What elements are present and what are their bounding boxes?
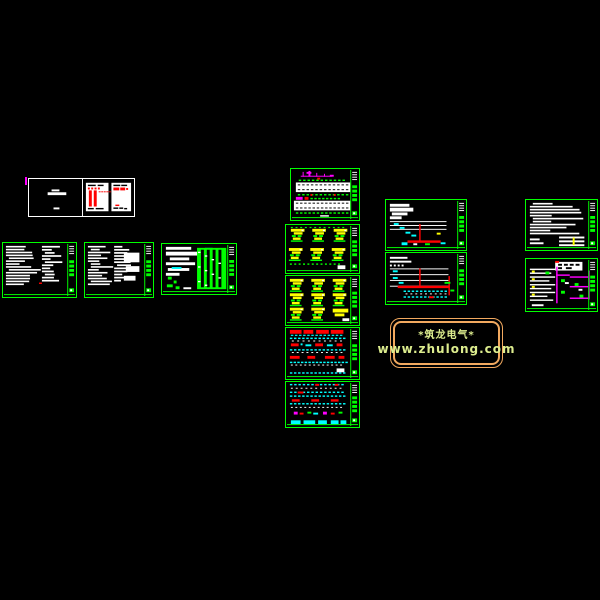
notes-sheet-1-graphics	[3, 243, 76, 297]
system-diagram-sheet-1-graphics	[286, 328, 359, 379]
plan-sheet	[525, 258, 598, 312]
system-diagram-sheet-1	[285, 327, 360, 380]
legend-sheet	[161, 243, 237, 295]
riser-diagram-sheet-graphics	[291, 169, 359, 220]
notes-sheet-3	[525, 199, 598, 251]
plan-sheet-graphics	[526, 259, 597, 311]
watermark-brand: *筑龙电气*	[418, 330, 474, 342]
legend-sheet-graphics	[162, 244, 236, 294]
watermark-border: *筑龙电气* www.zhulong.com	[393, 321, 500, 365]
watermark-url: www.zhulong.com	[377, 343, 515, 356]
power-system-sheet-2-graphics	[386, 253, 466, 304]
watermark: *筑龙电气* www.zhulong.com	[390, 318, 503, 368]
stray-mark	[25, 177, 27, 185]
cad-drawing-canvas: *筑龙电气* www.zhulong.com	[0, 0, 600, 600]
notes-sheet-1	[2, 242, 77, 298]
power-system-sheet-1	[385, 199, 467, 251]
distribution-sheet-2-graphics	[286, 276, 359, 325]
notes-sheet-2	[84, 242, 154, 298]
system-diagram-sheet-2-graphics	[286, 382, 359, 427]
power-system-sheet-2	[385, 252, 467, 305]
system-diagram-sheet-2	[285, 381, 360, 428]
distribution-sheet-1-graphics	[286, 225, 359, 273]
power-system-sheet-1-graphics	[386, 200, 466, 250]
distribution-sheet-1	[285, 224, 360, 274]
riser-diagram-sheet	[290, 168, 360, 221]
distribution-sheet-2	[285, 275, 360, 326]
notes-sheet-2-graphics	[85, 243, 153, 297]
cover-and-index-sheet-graphics	[29, 179, 134, 216]
cover-and-index-sheet	[28, 178, 135, 217]
notes-sheet-3-graphics	[526, 200, 597, 250]
